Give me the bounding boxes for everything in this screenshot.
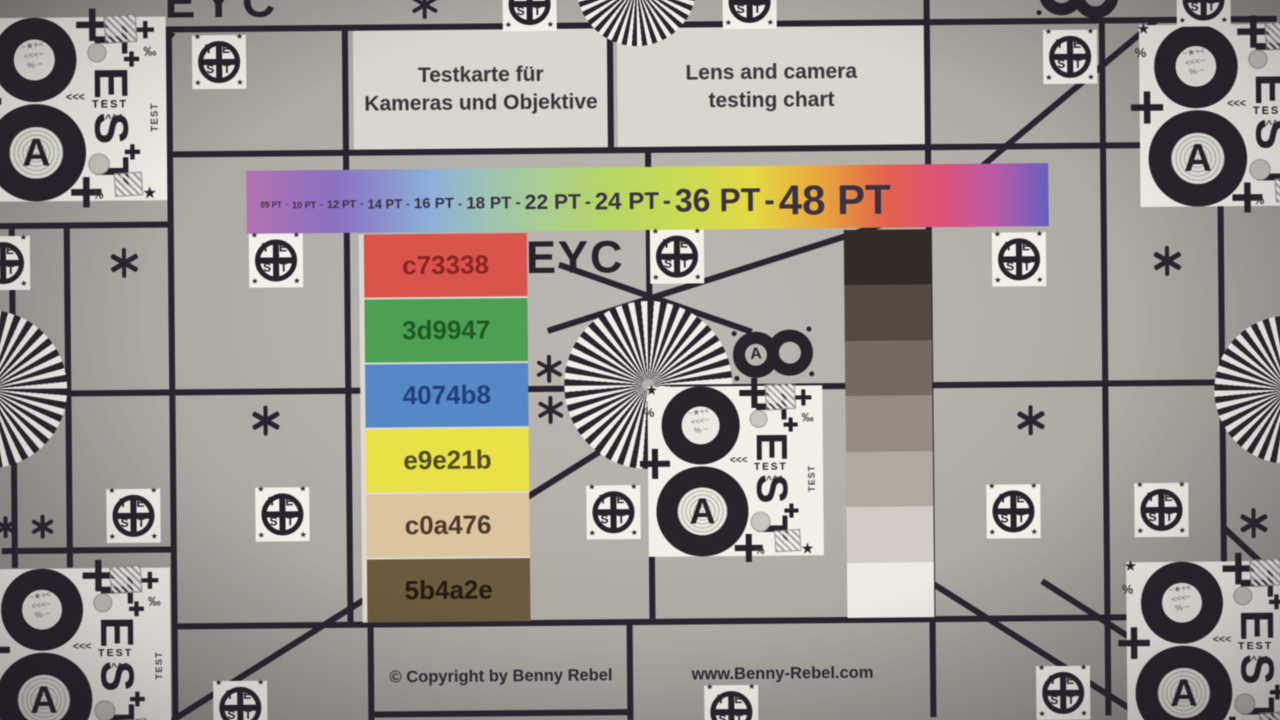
plus-bar: [0, 646, 10, 653]
dot-circle: [1248, 50, 1267, 69]
grid-line-v: [368, 625, 374, 720]
focus-card: ~★+< <<<~ %·~ATESTTESTTEST★★%%‰<<<^^^: [0, 568, 171, 720]
dot-circle: [1249, 159, 1271, 181]
plus-bar: [652, 449, 659, 479]
corner-star: ★: [150, 487, 157, 495]
star-mark: ★: [801, 541, 815, 556]
plus-mark: [0, 85, 1, 118]
test-cross-marker: ★★★★TEST: [249, 233, 304, 288]
corner-dot: [806, 326, 811, 331]
plus-bar: [83, 177, 90, 207]
letter-a: A: [22, 130, 51, 176]
marker-letter: T: [262, 242, 269, 254]
asterisk-mark: [536, 396, 564, 424]
marker-letter: S: [737, 3, 745, 15]
font-size-label: 16 PT: [414, 189, 454, 212]
font-size-label: 09 PT: [260, 194, 281, 209]
focus-card: ~★+< <<<~ %·~ATESTTESTTEST★★%%‰<<<^^^: [0, 17, 167, 202]
sketch-square: [114, 172, 143, 197]
grayscale-step: [844, 229, 932, 285]
plus-mark: [1270, 685, 1280, 700]
corner-star: ★: [748, 683, 755, 691]
grayscale-wedge: [844, 229, 935, 618]
corner-dot: [1111, 17, 1116, 22]
test-cross-marker: ★★★★TEST: [255, 487, 310, 542]
corner-star: ★: [1031, 528, 1038, 536]
website-text: www.Benny-Rebel.com: [635, 663, 930, 685]
siemens-star: [0, 310, 68, 470]
marker-letter: T: [1005, 240, 1012, 252]
asterisk-mark: [1152, 246, 1182, 276]
font-size-separator: -: [360, 193, 363, 210]
marker-letter: T: [1067, 694, 1074, 706]
corner-star: ★: [767, 19, 774, 27]
plus-bar: [130, 51, 133, 66]
eyc-label-partial: EYC: [164, 0, 283, 29]
plus-bar: [143, 21, 147, 38]
star-mark: ★: [142, 185, 157, 201]
sketch-square: [109, 565, 142, 594]
marker-letter: S: [718, 713, 726, 720]
marker-letter: T: [663, 238, 670, 250]
letter-a: A: [1170, 671, 1198, 715]
corner-star: ★: [20, 280, 27, 288]
asterisk-mark: [250, 405, 280, 435]
plus-mark: [1269, 594, 1280, 609]
glyph-mark: <<<: [73, 642, 92, 653]
font-size-bar: 09 PT-10 PT-12 PT-14 PT-16 PT-18 PT-22 P…: [246, 163, 1049, 234]
photo-frame: Testkarte für Kameras und Objektive Lens…: [0, 0, 1280, 720]
plus-bar: [1250, 16, 1257, 48]
grayscale-step: [847, 562, 935, 618]
plus-mark: [130, 692, 145, 707]
sketch-square: [1264, 21, 1280, 51]
marker-letter: T: [205, 43, 212, 55]
plus-mark: [141, 572, 158, 589]
corner-star: ★: [257, 486, 264, 494]
corner-star: ★: [251, 278, 258, 286]
corner-star: ★: [988, 483, 995, 491]
test-cross-marker: ★★★★TEST: [106, 489, 161, 544]
marker-letter: T: [599, 493, 606, 505]
small-test-label: TEST: [1238, 641, 1273, 653]
corner-star: ★: [994, 231, 1001, 239]
glyph-mark: ‰: [148, 595, 161, 608]
sketch-square: [1259, 711, 1280, 720]
plus-bar: [1275, 594, 1278, 609]
dot-circle: [1234, 693, 1255, 714]
glyph-mark: <<<: [1227, 99, 1246, 110]
marker-letter: S: [1191, 1, 1199, 13]
side-test-label: TEST: [153, 651, 164, 679]
grayscale-step: [845, 340, 933, 396]
plus-mark: [129, 601, 144, 616]
marker-letter: T: [681, 258, 688, 270]
grayscale-step: [846, 451, 934, 507]
marker-letter: T: [617, 513, 624, 525]
glyph-mark: ^^^: [105, 114, 124, 125]
grid-line-h: [2, 546, 174, 553]
corner-dot: [1036, 10, 1041, 15]
glyph-mark: %: [643, 407, 654, 419]
corner-star: ★: [1178, 481, 1185, 489]
letter-a: A: [732, 330, 781, 379]
focus-card: ~★+< <<<~ %·~ATESTTESTTEST★★%%‰<<<^^^: [1126, 561, 1280, 720]
font-size-label: 18 PT: [466, 187, 512, 213]
small-eight-target: A: [731, 326, 814, 381]
focus-card: ~★+< <<<~ %·~ATESTTESTTEST★★%%‰<<<^^^: [647, 385, 824, 557]
focus-card: ~★+< <<<~ %·~ATESTTESTTEST★★%%‰<<<^^^: [1139, 23, 1280, 207]
star-mark: ★: [1124, 558, 1137, 573]
corner-star: ★: [236, 33, 243, 41]
marker-letter: T: [1056, 38, 1063, 50]
marker-letter: T: [999, 492, 1006, 504]
marker-letter: S: [206, 63, 214, 75]
asterisk-mark: [1015, 405, 1045, 435]
test-cross-marker: ★★★★TEST: [986, 484, 1041, 539]
corner-star: ★: [194, 33, 201, 41]
corner-star: ★: [109, 533, 116, 541]
grid-line-v: [342, 28, 353, 625]
corner-star: ★: [652, 274, 659, 282]
corner-star: ★: [194, 79, 201, 87]
side-test-label: TEST: [807, 465, 817, 492]
title-german-line1: Testkarte für: [418, 61, 544, 90]
corner-star: ★: [1080, 664, 1087, 672]
corner-star: ★: [694, 273, 701, 281]
marker-letter: S: [263, 262, 271, 274]
marker-letter: T: [223, 63, 230, 75]
corner-star: ★: [1036, 276, 1043, 284]
test-cross-marker: ★★★★TEST: [502, 0, 557, 31]
sketch-square: [1249, 558, 1280, 587]
corner-star: ★: [1179, 527, 1186, 535]
marker-letter: T: [1017, 512, 1024, 524]
marker-letter: S: [1000, 512, 1008, 524]
marker-cross-bar: [746, 0, 752, 22]
concentric-rings: A: [9, 127, 63, 179]
plus-mark: [125, 144, 140, 159]
corner-star: ★: [300, 531, 307, 539]
title-box-german: Testkarte für Kameras und Objektive: [353, 28, 609, 149]
concentric-rings: A: [677, 487, 727, 535]
corner-star: ★: [1036, 230, 1043, 238]
corner-star: ★: [1087, 28, 1094, 36]
glyph-mark: ^^^: [766, 476, 784, 486]
corner-star: ★: [989, 529, 996, 537]
plus-bar: [0, 98, 1, 105]
marker-letter: T: [137, 517, 144, 529]
test-cross-marker: ★★★★TEST: [992, 232, 1047, 287]
asterisk-mark: [1238, 508, 1268, 538]
test-cross-marker: ★★★★TEST: [192, 35, 247, 90]
plus-bar: [1244, 182, 1251, 212]
glyph-mark: %: [755, 546, 765, 557]
marker-letter: T: [1165, 511, 1172, 523]
color-patch-column: c733383d99474074b8e9e21bc0a4765b4a2e: [359, 233, 531, 623]
small-test-label: TEST: [92, 99, 128, 111]
eyc-label: EYC: [526, 231, 625, 284]
glyph-mark: ^^^: [111, 662, 130, 673]
dot-circle: [749, 410, 767, 428]
font-size-separator: -: [458, 190, 462, 211]
asterisk-mark: [0, 516, 17, 538]
glyph-mark: <<<: [1213, 635, 1232, 646]
corner-star: ★: [631, 529, 638, 537]
plus-bar: [1130, 627, 1137, 659]
grayscale-step: [844, 285, 932, 341]
font-size-separator: -: [406, 192, 410, 210]
asterisk-mark: [109, 248, 139, 278]
plus-bar: [790, 504, 793, 518]
color-patch: e9e21b: [366, 428, 530, 493]
font-size-label: 12 PT: [327, 192, 357, 210]
marker-letter: T: [268, 496, 275, 508]
dot-circle: [88, 153, 110, 175]
marker-letter: T: [754, 3, 761, 15]
marker-letter: E: [1022, 240, 1030, 252]
plus-bar: [1235, 553, 1242, 585]
small-test-label: TEST: [754, 462, 788, 473]
plus-mark: [784, 417, 798, 431]
font-size-separator: -: [320, 194, 323, 209]
letter-a: A: [1184, 136, 1212, 181]
marker-cross-bar: [526, 0, 532, 24]
plus-bar: [136, 692, 139, 707]
corner-star: ★: [652, 228, 659, 236]
plus-bar: [751, 378, 758, 408]
marker-letter: E: [6, 244, 14, 256]
marker-letter: E: [1066, 674, 1074, 686]
corner-star: ★: [215, 679, 222, 687]
letter-a: A: [1037, 0, 1087, 17]
glyph-mark: %: [1254, 195, 1265, 207]
title-box-english: Lens and camera testing chart: [617, 25, 926, 147]
marker-letter: T: [286, 515, 293, 527]
corner-star: ★: [694, 227, 701, 235]
test-cross-marker: ★★★★TEST: [1176, 0, 1231, 27]
plus-bar: [89, 9, 96, 41]
plus-mark: [1218, 717, 1248, 720]
marker-letter: T: [1074, 58, 1081, 70]
glyph-mark: ^^^: [1266, 120, 1280, 131]
font-size-label: 24 PT: [595, 181, 659, 216]
corner-star: ★: [151, 533, 158, 541]
star-mark: ★: [1137, 21, 1151, 36]
sketch-square: [774, 529, 801, 553]
font-size-separator: -: [764, 176, 775, 219]
color-patch: c0a476: [366, 493, 530, 558]
marker-letter: E: [680, 238, 688, 250]
title-english-line2: testing chart: [708, 86, 834, 115]
corner-star: ★: [1045, 74, 1052, 82]
marker-letter: T: [244, 709, 251, 720]
corner-star: ★: [1038, 664, 1045, 672]
corner-star: ★: [251, 232, 258, 240]
corner-star: ★: [1038, 710, 1045, 718]
marker-letter: E: [222, 43, 230, 55]
marker-letter: T: [534, 5, 541, 17]
marker-letter: E: [1016, 492, 1024, 504]
plus-bar: [131, 144, 134, 159]
test-chart: Testkarte für Kameras und Objektive Lens…: [0, 0, 1280, 720]
dot-circle: [1233, 586, 1252, 605]
corner-star: ★: [1221, 16, 1228, 24]
plus-bar: [746, 534, 752, 562]
corner-star: ★: [1030, 482, 1037, 490]
font-size-separator: -: [585, 185, 591, 212]
marker-letter: E: [285, 495, 293, 507]
grid-line-v: [627, 622, 633, 720]
sketch-square: [1275, 177, 1280, 202]
font-size-label: 10 PT: [292, 194, 316, 210]
marker-letter: S: [227, 709, 235, 720]
plus-mark: [795, 389, 811, 405]
corner-star: ★: [588, 483, 595, 491]
concentric-rings: A: [1171, 132, 1225, 184]
marker-letter: T: [119, 497, 126, 509]
marker-letter: S: [517, 5, 525, 17]
marker-letter: S: [1006, 260, 1014, 272]
corner-star: ★: [1179, 17, 1186, 25]
dot-circle: [87, 43, 107, 63]
corner-star: ★: [293, 231, 300, 239]
dot-circle: [93, 593, 112, 612]
glyph-mark: %: [1135, 47, 1147, 60]
concentric-rings: A: [1157, 668, 1210, 719]
glyph-mark: <<<: [66, 93, 85, 104]
marker-letter: T: [7, 264, 14, 276]
plus-mark: [124, 51, 139, 66]
marker-letter: S: [1050, 694, 1058, 706]
plus-bar: [802, 389, 806, 405]
corner-star: ★: [589, 529, 596, 537]
corner-star: ★: [299, 485, 306, 493]
corner-star: ★: [725, 19, 732, 27]
marker-letter: T: [226, 689, 233, 701]
grid-line-h: [0, 221, 171, 228]
corner-star: ★: [505, 21, 512, 29]
marker-letter: S: [600, 513, 608, 525]
test-cross-marker: ★★★★TEST: [0, 236, 30, 291]
test-cross-marker: ★★★★TEST: [586, 485, 641, 540]
test-cross-marker: ★★★★TEST: [650, 229, 705, 284]
font-size-label: 48 PT: [778, 169, 891, 224]
chart-scene: Testkarte für Kameras und Objektive Lens…: [0, 0, 1280, 720]
dot-circle: [94, 700, 115, 720]
marker-letter: S: [664, 258, 672, 270]
glyph-mark: <<<: [730, 456, 748, 466]
font-size-label: 22 PT: [525, 184, 581, 215]
side-test-label: TEST: [149, 102, 160, 131]
plus-bar: [135, 601, 138, 616]
grayscale-step: [845, 395, 933, 451]
color-patch: 5b4a2e: [367, 558, 531, 623]
glyph-mark: ‰: [143, 45, 156, 58]
marker-letter: E: [136, 497, 144, 509]
corner-star: ★: [630, 483, 637, 491]
font-size-separator: -: [286, 195, 288, 208]
corner-star: ★: [236, 79, 243, 87]
letter-a: A: [689, 490, 715, 532]
grid-line-h: [371, 709, 633, 717]
corner-star: ★: [1136, 481, 1143, 489]
corner-star: ★: [706, 683, 713, 691]
small-test-label: TEST: [98, 648, 133, 660]
marker-letter: T: [1049, 674, 1056, 686]
marker-letter: E: [1073, 38, 1081, 50]
marker-letter: E: [616, 493, 624, 505]
color-patch: c73338: [364, 233, 528, 298]
glyph-mark: %: [1122, 583, 1133, 596]
grid-line-v: [1099, 21, 1111, 716]
marker-cross-bar: [1200, 0, 1206, 20]
plus-mark: [1131, 91, 1163, 123]
asterisk-mark: [30, 515, 54, 539]
corner-star: ★: [108, 487, 115, 495]
corner-dot: [734, 376, 739, 381]
marker-letter: T: [735, 713, 742, 720]
copyright-text: © Copyright by Benny Rebel: [375, 666, 627, 687]
marker-letter: E: [279, 241, 287, 253]
dot-circle: [750, 512, 770, 532]
corner-star: ★: [994, 277, 1001, 285]
marker-letter: S: [269, 515, 277, 527]
corner-star: ★: [20, 234, 27, 242]
marker-letter: T: [717, 693, 724, 705]
corner-star: ★: [547, 21, 554, 29]
marker-letter: E: [1164, 491, 1172, 503]
letter-a: A: [30, 678, 58, 720]
star-mark: ★: [645, 383, 658, 397]
concentric-rings: A: [17, 675, 70, 720]
title-english-line1: Lens and camera: [685, 58, 857, 87]
grayscale-step: [846, 506, 934, 562]
marker-letter: S: [1057, 58, 1065, 70]
small-test-label: TEST: [1253, 105, 1280, 117]
test-cross-marker: ★★★★TEST: [1134, 483, 1189, 538]
sketch-square: [103, 14, 137, 44]
corner-dot: [809, 371, 814, 376]
corner-star: ★: [1087, 74, 1094, 82]
color-patch: 3d9947: [364, 298, 528, 363]
glyph-mark: %: [93, 190, 104, 202]
color-patch: 4074b8: [365, 363, 529, 428]
plus-bar: [1143, 91, 1150, 123]
corner-star: ★: [1045, 28, 1052, 36]
plus-mark: [1118, 627, 1150, 659]
plus-mark: [0, 634, 10, 666]
test-cross-marker: ★★★★TEST: [704, 685, 759, 720]
marker-letter: T: [280, 261, 287, 273]
marker-letter: S: [120, 517, 128, 529]
glyph-mark: ‰: [802, 411, 814, 423]
font-size-separator: -: [663, 181, 671, 215]
font-size-label: 36 PT: [675, 176, 761, 220]
marker-letter: T: [1208, 0, 1215, 12]
plus-bar: [95, 560, 102, 592]
corner-star: ★: [1080, 710, 1087, 718]
marker-letter: T: [1023, 260, 1030, 272]
corner-star: ★: [1137, 527, 1144, 535]
plus-bar: [148, 572, 152, 589]
plus-mark: [640, 449, 670, 479]
test-cross-marker: ★★★★TEST: [213, 681, 268, 720]
sketch-square: [765, 383, 797, 411]
corner-star: ★: [257, 679, 264, 687]
plus-bar: [1276, 685, 1279, 700]
grid-line-v: [607, 28, 614, 150]
